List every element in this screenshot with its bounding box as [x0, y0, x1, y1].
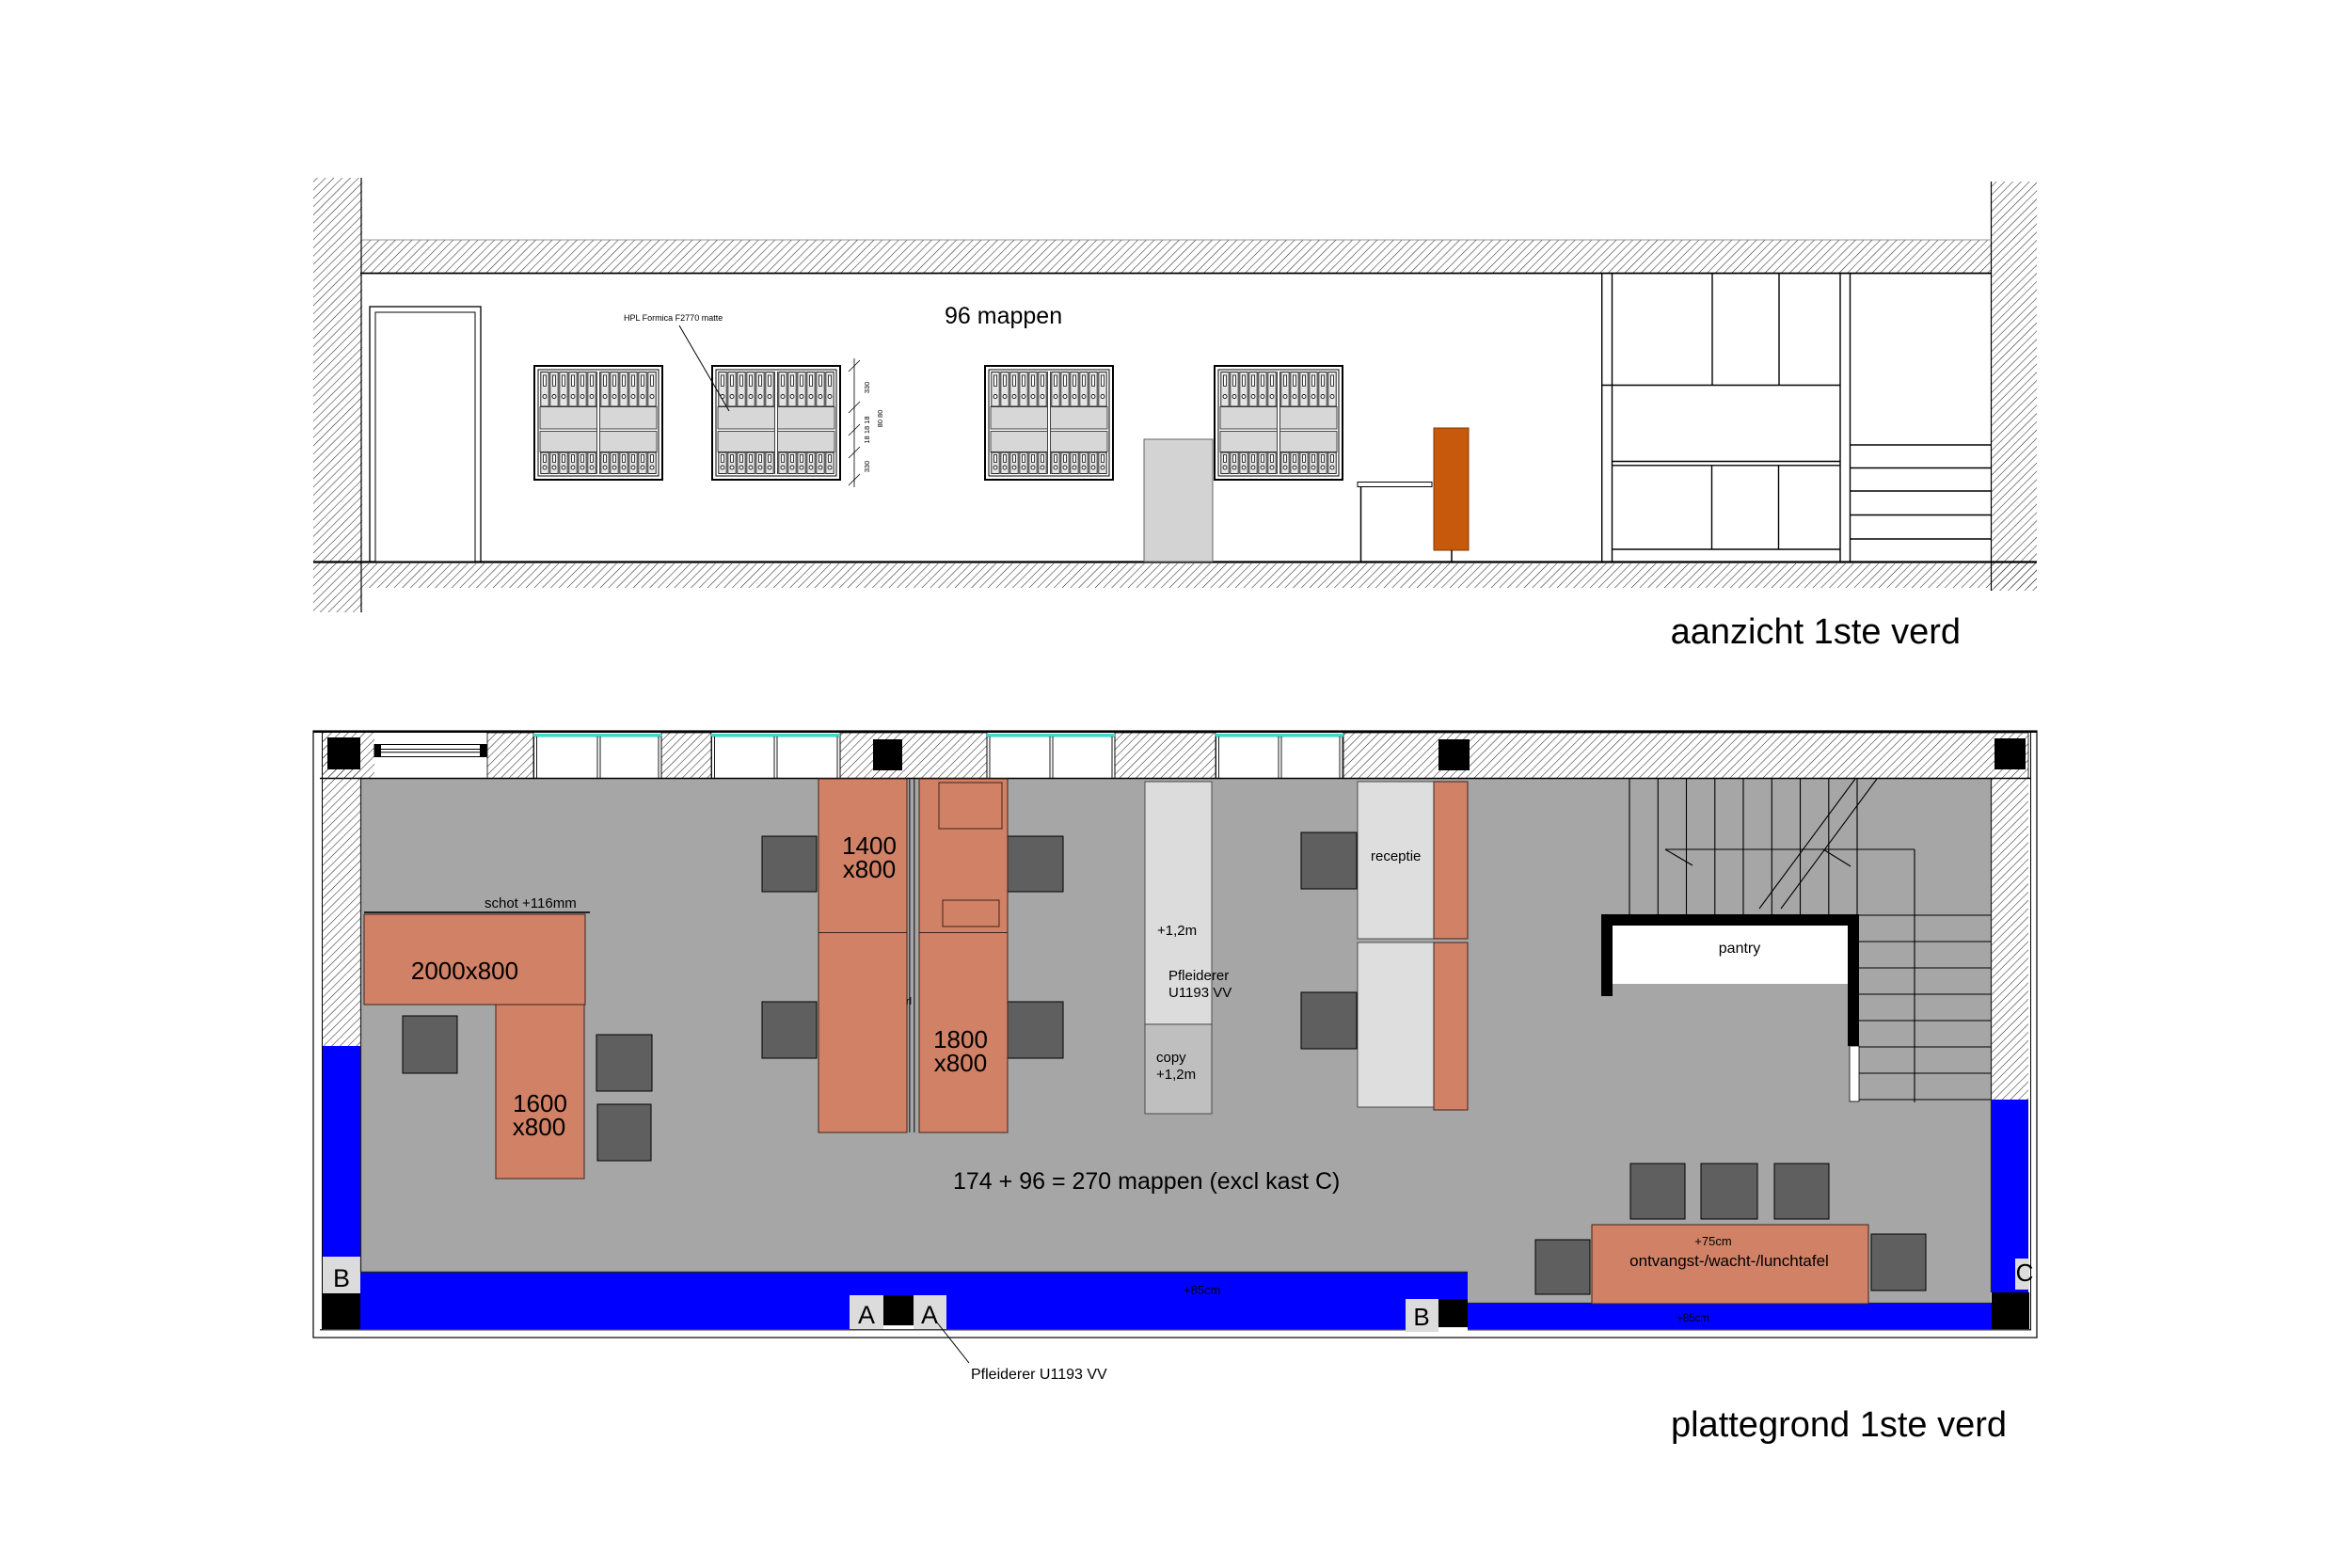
svg-text:rl: rl [906, 996, 912, 1007]
svg-text:B: B [1413, 1303, 1429, 1331]
svg-text:x800: x800 [934, 1049, 987, 1077]
svg-text:18 18 18: 18 18 18 [863, 416, 871, 443]
svg-text:A: A [921, 1301, 938, 1329]
svg-text:174 + 96 = 270 mappen (excl ka: 174 + 96 = 270 mappen (excl kast C) [953, 1168, 1340, 1195]
svg-text:330: 330 [863, 461, 871, 473]
svg-text:80 80: 80 80 [876, 410, 884, 428]
svg-text:+1,2m: +1,2m [1156, 1067, 1196, 1083]
svg-text:x800: x800 [513, 1113, 565, 1141]
svg-text:plattegrond 1ste verd: plattegrond 1ste verd [1671, 1405, 2007, 1445]
svg-text:x800: x800 [843, 855, 896, 883]
svg-text:C: C [2016, 1259, 2034, 1287]
svg-text:B: B [333, 1264, 350, 1292]
svg-text:pantry: pantry [1719, 941, 1760, 957]
svg-text:+85cm: +85cm [1677, 1313, 1709, 1324]
svg-text:ontvangst-/wacht-/lunchtafel: ontvangst-/wacht-/lunchtafel [1629, 1252, 1829, 1270]
svg-text:aanzicht 1ste verd: aanzicht 1ste verd [1671, 612, 1961, 652]
svg-text:2000x800: 2000x800 [411, 957, 518, 985]
svg-text:A: A [858, 1301, 875, 1329]
svg-text:receptie: receptie [1371, 848, 1421, 864]
svg-text:+75cm: +75cm [1694, 1234, 1731, 1248]
svg-text:HPL Formica F2770 matte: HPL Formica F2770 matte [624, 313, 723, 323]
svg-text:Pfleiderer: Pfleiderer [1168, 968, 1229, 984]
svg-text:Pfleiderer U1193 VV: Pfleiderer U1193 VV [971, 1367, 1107, 1383]
svg-text:U1193 VV: U1193 VV [1168, 985, 1232, 1001]
svg-text:schot +116mm: schot +116mm [485, 895, 577, 911]
svg-text:+1,2m: +1,2m [1157, 923, 1197, 939]
svg-text:96 mappen: 96 mappen [945, 303, 1062, 329]
svg-text:copy: copy [1156, 1050, 1186, 1066]
svg-text:330: 330 [863, 382, 871, 394]
svg-text:+85cm: +85cm [1184, 1283, 1220, 1297]
